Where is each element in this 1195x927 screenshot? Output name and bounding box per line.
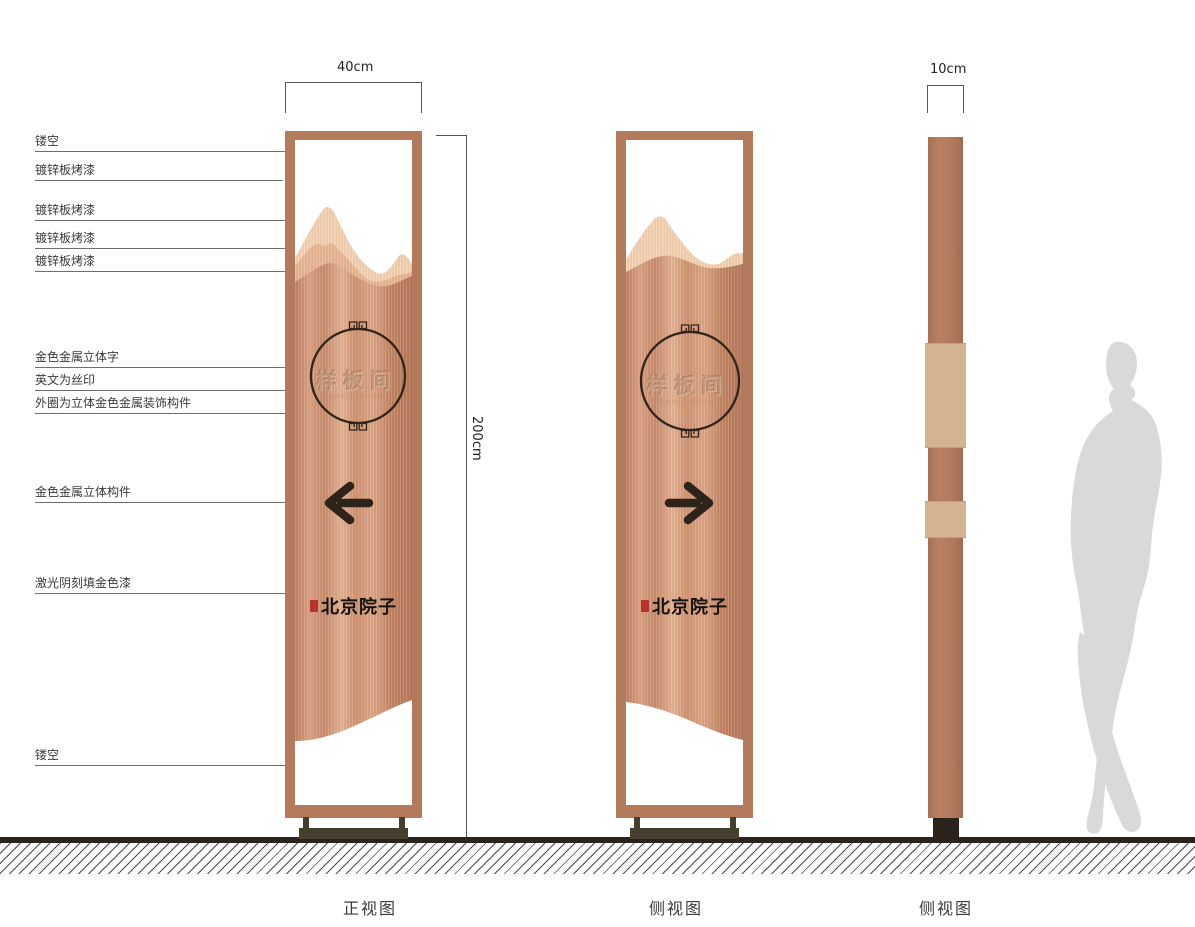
callout-galvanized-paint-1-label: 镀锌板烤漆 <box>35 163 95 177</box>
sign-profile-bar <box>928 137 963 818</box>
callout-galvanized-paint-4-label: 镀锌板烤漆 <box>35 254 95 268</box>
dimension-height-line <box>466 135 467 838</box>
sign-back-brand-text: 北京院子 <box>652 593 728 619</box>
callout-galvanized-paint-3: 镀锌板烤漆 <box>35 231 291 249</box>
callout-hollow-top-label: 镂空 <box>35 134 59 148</box>
view-caption-back: 侧视图 <box>649 895 703 919</box>
sign-front-room-name-en: SAMPLE ROOM <box>295 394 412 401</box>
sign-profile-base <box>933 818 959 841</box>
callout-hollow-bottom-label: 镂空 <box>35 748 59 762</box>
callout-galvanized-paint-1: 镀锌板烤漆 <box>35 163 283 181</box>
view-caption-front: 正视图 <box>343 895 397 919</box>
signage-spec-drawing: 镂空 镀锌板烤漆 镀锌板烤漆 镀锌板烤漆 镀锌板烤漆 金色金属立体字 英文为丝印… <box>0 0 1195 927</box>
callout-laser-engraved-gold: 激光阴刻填金色漆 <box>35 576 318 594</box>
sign-profile-arrow-strip <box>925 501 966 538</box>
ground-hatch <box>0 843 1195 874</box>
callout-galvanized-paint-4: 镀锌板烤漆 <box>35 254 294 272</box>
callout-hollow-top: 镂空 <box>35 134 307 152</box>
callout-hollow-bottom: 镂空 <box>35 748 302 766</box>
sign-front-panel <box>295 140 412 805</box>
sign-front-room-name: 样板间 <box>298 365 415 395</box>
human-silhouette <box>1035 336 1175 838</box>
callout-outer-ring-ornament: 外圈为立体金色金属装饰构件 <box>35 396 318 414</box>
view-caption-profile: 侧视图 <box>919 895 973 919</box>
sign-front-stand-base <box>299 828 408 839</box>
sign-back-brand: 北京院子 <box>626 593 743 619</box>
sign-back-room-name: 样板间 <box>629 370 746 400</box>
sign-front-brand-text: 北京院子 <box>321 593 397 619</box>
red-seal-icon-back <box>641 600 649 612</box>
dimension-height-tick <box>436 135 466 136</box>
sign-back-room-name-en: SAMPLE ROOM <box>626 399 743 406</box>
callout-galvanized-paint-2-label: 镀锌板烤漆 <box>35 203 95 217</box>
callout-english-silkscreen-label: 英文为丝印 <box>35 373 95 387</box>
red-seal-icon <box>310 600 318 612</box>
dimension-side-depth-bracket <box>927 85 964 113</box>
callout-laser-engraved-gold-label: 激光阴刻填金色漆 <box>35 576 131 590</box>
back-main-panel-grain <box>626 256 743 740</box>
callout-galvanized-paint-3-label: 镀锌板烤漆 <box>35 231 95 245</box>
callout-outer-ring-ornament-label: 外圈为立体金色金属装饰构件 <box>35 396 191 410</box>
dimension-side-depth-label: 10cm <box>930 62 966 77</box>
sign-profile-ornament-strip <box>925 343 966 448</box>
callout-gold-metal-3d-text-label: 金色金属立体字 <box>35 350 119 364</box>
dimension-height-label: 200cm <box>469 416 484 461</box>
callout-galvanized-paint-2: 镀锌板烤漆 <box>35 203 323 221</box>
dimension-front-width-bracket <box>285 82 422 113</box>
callout-gold-metal-component-label: 金色金属立体构件 <box>35 485 131 499</box>
sign-front-brand: 北京院子 <box>295 593 412 619</box>
sign-back-stand-base <box>630 828 739 839</box>
sign-back-panel <box>626 140 743 805</box>
dimension-front-width-label: 40cm <box>337 60 373 75</box>
